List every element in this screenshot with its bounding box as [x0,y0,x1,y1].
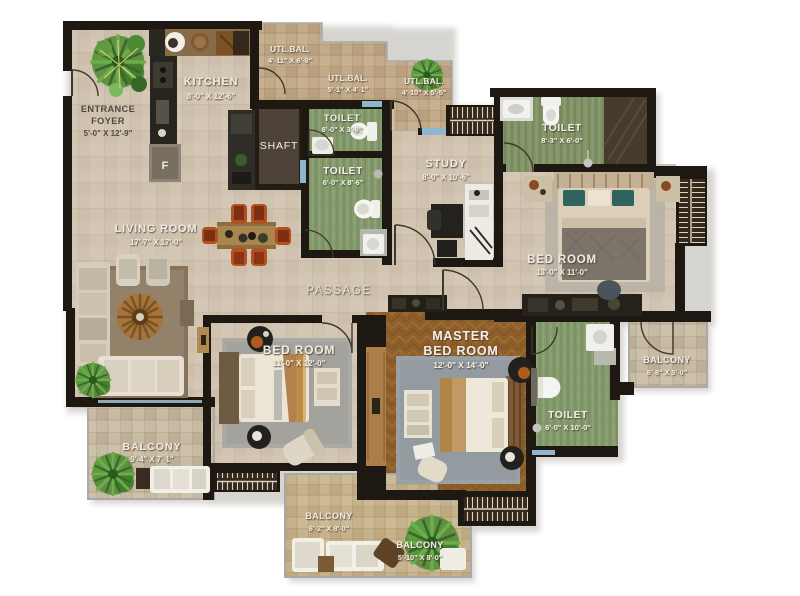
svg-text:5'-1" X 4'-1": 5'-1" X 4'-1" [328,85,368,94]
svg-text:4'-11" X 6'-9": 4'-11" X 6'-9" [268,56,312,65]
svg-text:BALCONY: BALCONY [396,540,443,550]
svg-text:6'-8" X 5'-0": 6'-8" X 5'-0" [647,368,687,377]
svg-text:UTL.BAL.: UTL.BAL. [328,74,368,83]
svg-text:FOYER: FOYER [91,116,125,126]
svg-text:PASSAGE: PASSAGE [306,285,371,297]
svg-text:SHAFT: SHAFT [260,140,298,152]
svg-text:17'-7" X 17'-0": 17'-7" X 17'-0" [130,238,182,247]
svg-text:TOILET: TOILET [324,113,360,123]
svg-text:8'-3" X 6'-0": 8'-3" X 6'-0" [541,136,583,145]
svg-text:6'-2" X 8'-0": 6'-2" X 8'-0" [309,524,349,533]
svg-text:TOILET: TOILET [548,410,588,421]
svg-text:6'-0" X 8'-6": 6'-0" X 8'-6" [323,178,363,187]
svg-text:F: F [162,160,169,172]
svg-text:5'-0" X 12'-9": 5'-0" X 12'-9" [84,129,133,138]
svg-text:TOILET: TOILET [323,166,363,177]
svg-text:UTL.BAL.: UTL.BAL. [270,45,310,54]
svg-text:BALCONY: BALCONY [123,441,182,453]
svg-text:BED ROOM: BED ROOM [423,344,498,358]
svg-text:STUDY: STUDY [425,158,466,170]
svg-text:MASTER: MASTER [432,329,490,343]
svg-text:8'-0" X 12'-6": 8'-0" X 12'-6" [187,92,236,101]
svg-text:6'-0" X 10'-0": 6'-0" X 10'-0" [545,423,591,432]
svg-text:BED ROOM: BED ROOM [263,343,335,357]
svg-text:12'-0" X 14'-0": 12'-0" X 14'-0" [433,360,488,370]
svg-text:6'-0" X 3'-6": 6'-0" X 3'-6" [322,125,362,134]
svg-text:ENTRANCE: ENTRANCE [81,104,135,114]
svg-text:TOILET: TOILET [542,123,582,134]
svg-text:KITCHEN: KITCHEN [184,76,239,88]
svg-text:4'-10" X 5'-5": 4'-10" X 5'-5" [402,88,446,97]
svg-text:13'-0" X 11'-0": 13'-0" X 11'-0" [536,268,588,277]
svg-text:9'-4" X 7'-1": 9'-4" X 7'-1" [130,455,173,464]
svg-text:BALCONY: BALCONY [643,355,690,365]
svg-text:BALCONY: BALCONY [305,511,352,521]
svg-text:BED ROOM: BED ROOM [527,254,597,266]
svg-text:8'-0" X 10'-6": 8'-0" X 10'-6" [422,173,470,182]
svg-text:UTL.BAL.: UTL.BAL. [404,77,444,86]
svg-text:11'-0" X 12'-0": 11'-0" X 12'-0" [273,359,326,368]
svg-text:5'-10" X 8'-0": 5'-10" X 8'-0" [398,553,442,562]
svg-text:LIVING ROOM: LIVING ROOM [115,223,198,235]
